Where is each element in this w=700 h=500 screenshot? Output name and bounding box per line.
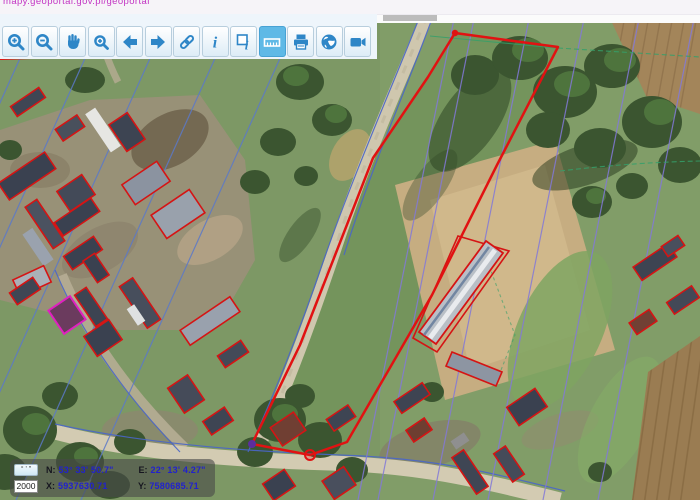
y-value: 7580685.71 — [149, 481, 199, 491]
north-value: 53° 33' 50.7" — [59, 465, 133, 475]
browser-url-text[interactable]: mapy.geoportal.gov.pl/geoportal — [3, 0, 150, 7]
x-value: 5937630.71 — [58, 481, 132, 491]
info-icon: i — [205, 32, 225, 52]
identify-icon: i — [234, 32, 254, 52]
east-label: E: — [139, 465, 148, 475]
back-arrow-icon — [120, 32, 140, 52]
video-camera-icon — [348, 32, 368, 52]
vertex-marker-purple — [248, 440, 256, 448]
north-label: N: — [46, 465, 56, 475]
svg-text:i: i — [244, 37, 248, 52]
zoom-out-button[interactable] — [31, 26, 58, 57]
pan-hand-icon — [63, 32, 83, 52]
browser-top-strip: mapy.geoportal.gov.pl/geoportal — [0, 0, 700, 15]
forward-arrow-icon — [148, 32, 168, 52]
previous-view-button[interactable] — [116, 26, 143, 57]
svg-text:i: i — [213, 34, 218, 51]
aerial-map-canvas[interactable] — [0, 0, 700, 500]
vertex-marker-red — [305, 450, 315, 460]
next-view-button[interactable] — [145, 26, 172, 57]
globe-icon — [319, 32, 339, 52]
measure-button[interactable] — [259, 26, 286, 57]
zoom-out-icon — [34, 32, 54, 52]
world-button[interactable] — [316, 26, 343, 57]
parcel-corner-dot — [452, 30, 458, 36]
pan-button[interactable] — [59, 26, 86, 57]
scrollbar-thumb[interactable] — [383, 15, 437, 21]
x-label: X: — [46, 481, 55, 491]
zoom-in-button[interactable] — [2, 26, 29, 57]
y-label: Y: — [138, 481, 146, 491]
snapshot-button[interactable] — [344, 26, 371, 57]
map-toolbar: i i — [0, 14, 377, 59]
east-value: 22° 13' 4.27" — [151, 465, 206, 475]
link-icon — [177, 32, 197, 52]
zoom-selection-button[interactable] — [88, 26, 115, 57]
dms-format-button[interactable]: ° ' " — [14, 464, 38, 476]
link-button[interactable] — [173, 26, 200, 57]
scale-input[interactable] — [14, 480, 38, 493]
zoom-in-icon — [6, 32, 26, 52]
zoom-selection-icon — [91, 32, 111, 52]
measure-ruler-icon — [262, 32, 282, 52]
print-button[interactable] — [287, 26, 314, 57]
coordinates-panel: ° ' " N: 53° 33' 50.7" E: 22° 13' 4.27" … — [10, 459, 215, 497]
info-button[interactable]: i — [202, 26, 229, 57]
identify-button[interactable]: i — [230, 26, 257, 57]
printer-icon — [291, 32, 311, 52]
geoportal-app-window: mapy.geoportal.gov.pl/geoportal — [0, 0, 700, 500]
